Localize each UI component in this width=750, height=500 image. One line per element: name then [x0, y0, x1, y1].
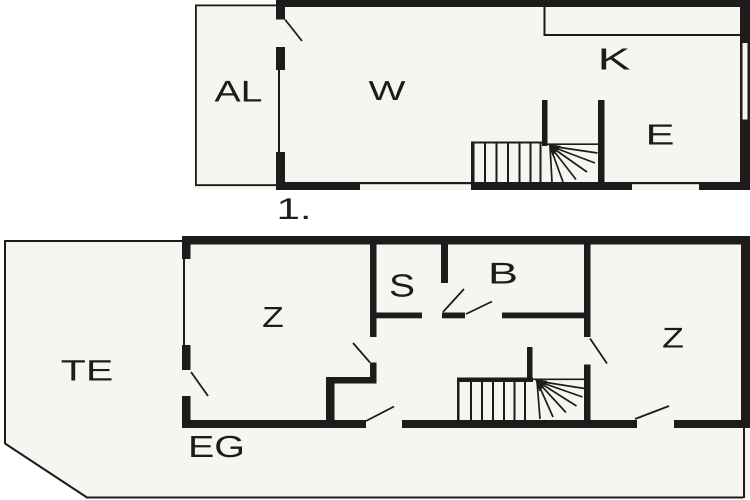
- svg-text:W: W: [369, 75, 406, 106]
- svg-text:Z: Z: [662, 323, 684, 355]
- svg-text:E: E: [646, 120, 675, 152]
- svg-text:Z: Z: [262, 302, 284, 334]
- svg-text:TE: TE: [61, 355, 114, 388]
- svg-text:EG: EG: [188, 430, 245, 464]
- svg-text:K: K: [598, 43, 631, 77]
- svg-text:B: B: [488, 258, 518, 291]
- svg-text:S: S: [389, 268, 415, 304]
- svg-text:AL: AL: [215, 76, 263, 109]
- svg-text:1.: 1.: [277, 193, 312, 226]
